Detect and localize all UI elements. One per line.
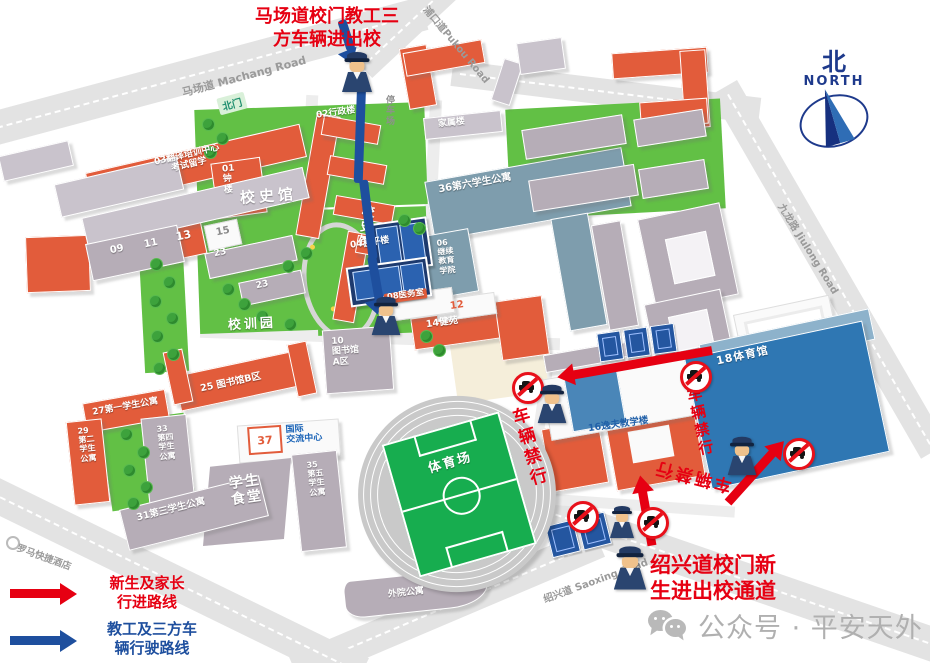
legend-new-students: 新生及家长 行进路线	[82, 574, 212, 612]
south-gate-note-line2: 生进出校通道	[650, 578, 860, 604]
officer-icon	[610, 506, 634, 538]
label-12: 12	[449, 299, 464, 312]
tree	[166, 312, 179, 325]
compass: 北 NORTH	[792, 50, 876, 147]
top-gate-note-line2: 方车辆进出校	[222, 29, 432, 52]
legend-new-students-line2: 行进路线	[82, 593, 212, 612]
label-bell-01: 01 钟 楼	[222, 164, 237, 196]
no-entry-icon	[680, 361, 712, 393]
top-gate-note: 马场道校门教工三 方车辆进出校	[222, 6, 432, 51]
legend-red-arrow	[10, 589, 62, 598]
label-xiaoxunyuan: 校训园	[228, 317, 277, 334]
tree	[420, 330, 433, 343]
legend-new-students-line1: 新生及家长	[82, 574, 212, 593]
tree	[413, 222, 426, 235]
legend-blue-arrow	[10, 636, 62, 645]
wechat-icon	[648, 608, 692, 644]
label-37-box: 37	[247, 425, 283, 455]
label-parking: 停 车 场	[386, 96, 395, 127]
compass-icon	[793, 86, 875, 155]
tree	[140, 481, 153, 494]
building-west-bar	[0, 140, 74, 182]
officer-icon	[342, 52, 372, 92]
building-north-gray	[516, 37, 566, 75]
no-entry-icon	[637, 507, 669, 539]
tree	[398, 214, 411, 227]
tree	[151, 330, 164, 343]
south-gate-note-line1: 绍兴道校门新	[650, 552, 860, 578]
tree	[222, 283, 235, 296]
legend-staff-line2: 辆行驶路线	[82, 639, 222, 658]
tree	[300, 247, 313, 260]
legend-staff-line1: 教工及三方车	[82, 620, 222, 639]
no-entry-icon	[783, 438, 815, 470]
tree	[127, 497, 140, 510]
wechat-account-label: 公众号 · 平安天外	[698, 606, 923, 645]
stadium-label: 体育场	[427, 451, 474, 478]
officer-icon	[728, 437, 757, 475]
tree	[150, 258, 163, 271]
tree	[137, 446, 150, 459]
label-canteen: 学生 食堂	[228, 472, 264, 508]
compass-north-cn: 北	[792, 50, 876, 74]
tree	[284, 318, 297, 331]
tree	[153, 362, 166, 375]
campus-map: 体育场 马场道 Machang Road 北门 浦口道Pukou Road 九龙…	[0, 0, 930, 663]
tree	[433, 344, 446, 357]
legend-staff: 教工及三方车 辆行驶路线	[82, 620, 222, 658]
no-entry-icon	[567, 501, 599, 533]
tree	[202, 118, 215, 131]
label-libA-10: 10 图书馆 A区	[331, 335, 360, 368]
tree	[149, 295, 162, 308]
officer-icon	[538, 385, 567, 423]
south-gate-note: 绍兴道校门新 生进出校通道	[650, 552, 860, 605]
tree	[167, 348, 180, 361]
tree	[282, 260, 295, 273]
label-intl: 国际 交流中心	[285, 423, 322, 446]
officer-icon	[372, 297, 401, 335]
tree	[123, 464, 136, 477]
officer-icon	[614, 546, 646, 589]
tree	[238, 298, 251, 311]
building-libB-25	[287, 341, 318, 398]
tree	[163, 276, 176, 289]
label-37: 37	[257, 433, 273, 447]
tree	[120, 428, 133, 441]
top-gate-note-line1: 马场道校门教工三	[222, 6, 432, 29]
building-west-orange	[25, 235, 91, 293]
building-14-annex	[494, 295, 550, 361]
